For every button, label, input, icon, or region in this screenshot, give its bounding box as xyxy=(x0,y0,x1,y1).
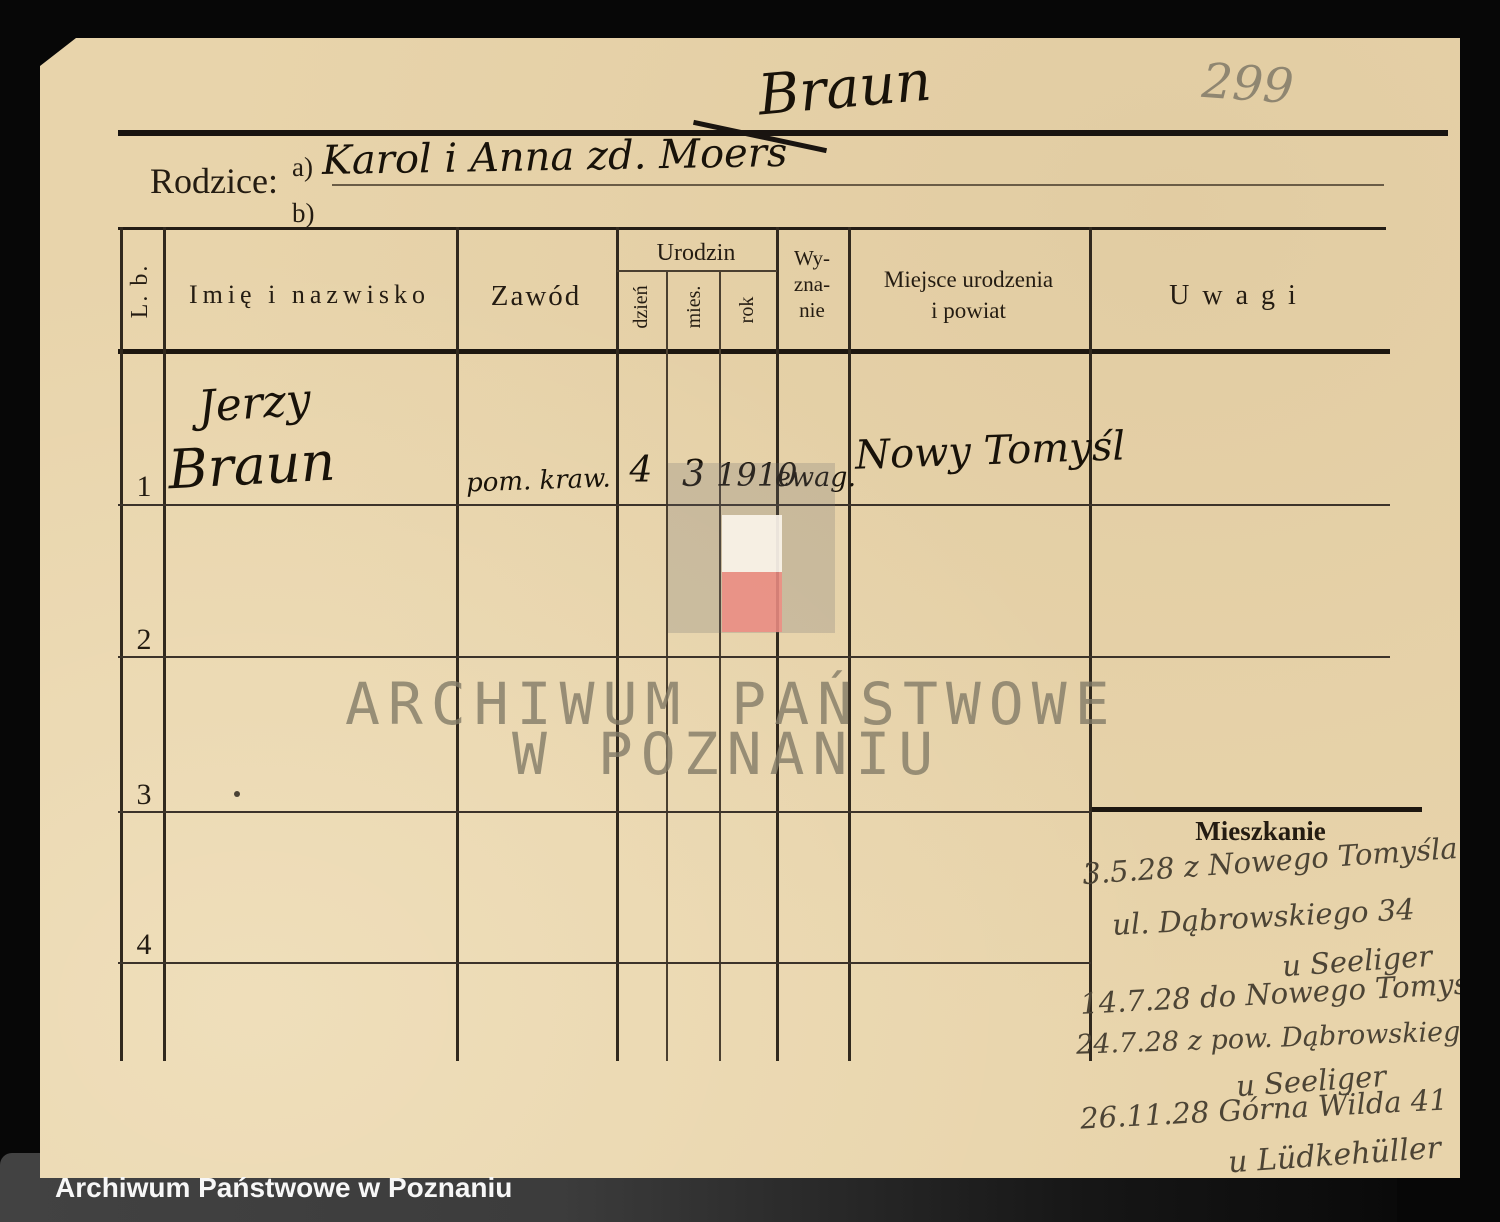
row-number-1: 1 xyxy=(124,470,164,504)
row-4-rule xyxy=(118,962,1091,964)
col-header-miejsce: Miejsce urodzenia i powiat xyxy=(848,264,1089,326)
archive-caption: Archiwum Państwowe w Poznaniu xyxy=(55,1172,512,1204)
row-3-rule xyxy=(118,811,1091,813)
table-top-rule xyxy=(118,227,1386,230)
col-header-uwagi: Uwagi xyxy=(1089,280,1389,312)
row1-dzien-handwriting: 4 xyxy=(616,450,666,491)
miejsce-line-2: i powiat xyxy=(848,295,1089,326)
col-rule-dzien xyxy=(666,271,668,1061)
line-a-label: a) xyxy=(292,152,313,183)
mieszkanie-entry-2: ul. Dąbrowskiego 34 xyxy=(1111,892,1415,942)
surname-handwriting: Braun xyxy=(755,49,933,129)
row1-zawod-handwriting: pom. kraw. xyxy=(466,463,612,498)
col-header-dzien: dzień xyxy=(630,270,652,344)
row1-firstname-handwriting: Jerzy xyxy=(196,374,312,433)
polish-flag-watermark xyxy=(668,463,835,633)
row1-miejsce-handwriting: Nowy Tomyśl xyxy=(854,423,1126,478)
watermark-line-2: W POZNANIU xyxy=(512,720,941,788)
document-paper: Braun 299 Rodzice: a) Karol i Anna zd. M… xyxy=(40,38,1460,1178)
col-header-lb: L. b. xyxy=(127,249,153,333)
col-rule-zawod xyxy=(616,227,619,1061)
table-left-rule xyxy=(120,227,123,1061)
row-number-3: 3 xyxy=(124,778,164,812)
col-header-urodzin: Urodzin xyxy=(616,240,776,267)
row-2-rule xyxy=(118,656,1390,658)
flag-red-stripe xyxy=(722,572,782,632)
line-a-rule xyxy=(332,184,1384,186)
parents-handwriting: Karol i Anna zd. Moers xyxy=(322,130,788,184)
col-header-rok: rok xyxy=(736,273,758,347)
miejsce-line-1: Miejsce urodzenia xyxy=(848,264,1089,295)
col-header-mies: mies. xyxy=(683,270,705,344)
flag-white-stripe xyxy=(722,515,782,572)
rodzice-label: Rodzice: xyxy=(150,160,278,202)
page-number-pencil: 299 xyxy=(1200,53,1295,115)
col-header-name: Imię i nazwisko xyxy=(163,280,456,310)
wyznanie-line-3: nie xyxy=(776,297,848,323)
col-rule-miejsce xyxy=(1089,227,1092,1061)
line-b-label: b) xyxy=(292,198,315,229)
wyznanie-line-1: Wy- xyxy=(776,245,848,271)
mieszkanie-entry-8: u Lüdkehüller xyxy=(1227,1131,1442,1181)
row-number-4: 4 xyxy=(124,928,164,962)
row-number-2: 2 xyxy=(124,623,164,657)
row1-surname-handwriting: Braun xyxy=(166,430,336,502)
col-rule-wyznanie xyxy=(848,227,851,1061)
col-header-wyznanie: Wy- zna- nie xyxy=(776,245,848,323)
wyznanie-line-2: zna- xyxy=(776,271,848,297)
col-rule-mies xyxy=(719,271,721,1061)
mieszkanie-rule xyxy=(1092,807,1422,812)
col-rule-rok xyxy=(776,227,779,1061)
ink-speck xyxy=(234,791,240,797)
mieszkanie-entry-5: 24.7.28 z pow. Dąbrowskiego 34 xyxy=(1076,1014,1500,1060)
header-bottom-rule xyxy=(118,349,1390,354)
col-rule-name xyxy=(456,227,459,1061)
col-header-zawod: Zawód xyxy=(456,280,616,313)
